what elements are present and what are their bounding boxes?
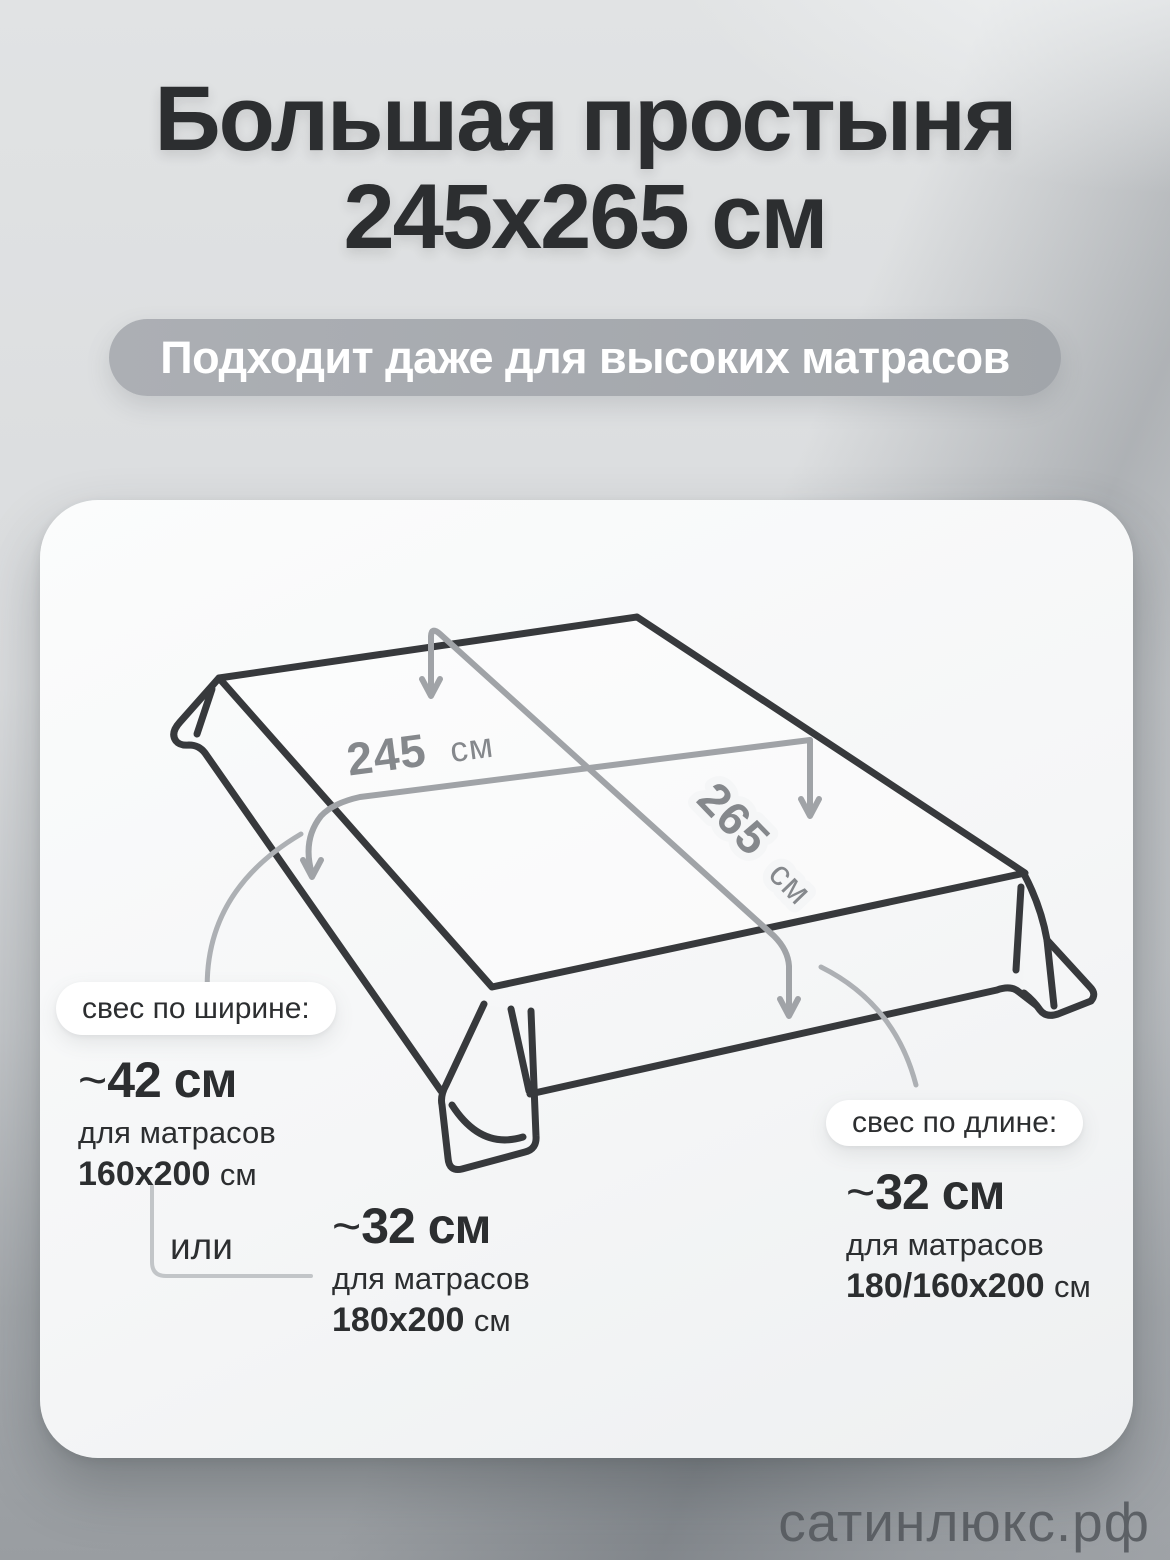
subtitle-badge: Подходит даже для высоких матрасов xyxy=(109,319,1061,396)
width-overhang-size: 160х200 см xyxy=(78,1156,276,1193)
width-alt-overhang-size: 180х200 см xyxy=(332,1302,530,1339)
subtitle-badge-text: Подходит даже для высоких матрасов xyxy=(160,332,1010,384)
width-alt-overhang-value: ~32 см xyxy=(332,1200,530,1252)
width-alt-overhang-for: для матрасов xyxy=(332,1262,530,1296)
width-overhang-value: ~42 см xyxy=(78,1054,276,1106)
width-overhang-for: для матрасов xyxy=(78,1116,276,1150)
or-label: или xyxy=(170,1226,233,1268)
page-title-line-1: Большая простыня xyxy=(0,70,1170,168)
length-overhang-pill-label: свес по длине: xyxy=(852,1106,1057,1140)
mattress-size: 180х200 xyxy=(332,1301,464,1339)
length-overhang-values: ~32 см для матрасов 180/160х200 см xyxy=(846,1166,1091,1305)
width-overhang-values: ~42 см для матрасов 160х200 см xyxy=(78,1054,276,1193)
width-overhang-pill-label: свес по ширине: xyxy=(82,992,310,1026)
length-overhang-number: 32 см xyxy=(875,1164,1004,1220)
diagram-card: 245 см 265 см свес по ширине: ~42 см для… xyxy=(40,500,1133,1458)
page-title: Большая простыня 245х265 см xyxy=(0,70,1170,266)
length-overhang-pill: свес по длине: xyxy=(826,1100,1083,1146)
width-alt-overhang-values: ~32 см для матрасов 180х200 см xyxy=(332,1200,530,1339)
approx-sign: ~ xyxy=(846,1164,875,1220)
mattress-size-unit: см xyxy=(220,1157,257,1192)
sheet-right-face-fold xyxy=(1016,887,1021,970)
approx-sign: ~ xyxy=(332,1198,361,1254)
sheet-diagram: 245 см 265 см xyxy=(40,500,1133,1458)
mattress-size: 180/160х200 xyxy=(846,1267,1045,1305)
length-overhang-value: ~32 см xyxy=(846,1166,1091,1218)
width-dimension-unit: см xyxy=(448,726,496,770)
sheet-left-drape-fill xyxy=(442,1005,536,1170)
infographic-page: Большая простыня 245х265 см Подходит даж… xyxy=(0,0,1170,1560)
width-alt-overhang-number: 32 см xyxy=(361,1198,490,1254)
width-overhang-pill: свес по ширине: xyxy=(56,982,336,1035)
page-title-line-2: 245х265 см xyxy=(0,168,1170,266)
length-overhang-for: для матрасов xyxy=(846,1228,1091,1262)
sheet-drawing xyxy=(174,617,1094,1170)
width-overhang-number: 42 см xyxy=(107,1052,236,1108)
watermark: сатинлюкс.рф xyxy=(778,1490,1150,1554)
length-overhang-size: 180/160х200 см xyxy=(846,1268,1091,1305)
mattress-size-unit: см xyxy=(474,1303,511,1338)
approx-sign: ~ xyxy=(78,1052,107,1108)
width-dimension-value: 245 xyxy=(344,724,430,786)
mattress-size-unit: см xyxy=(1054,1269,1091,1304)
mattress-size: 160х200 xyxy=(78,1155,210,1193)
